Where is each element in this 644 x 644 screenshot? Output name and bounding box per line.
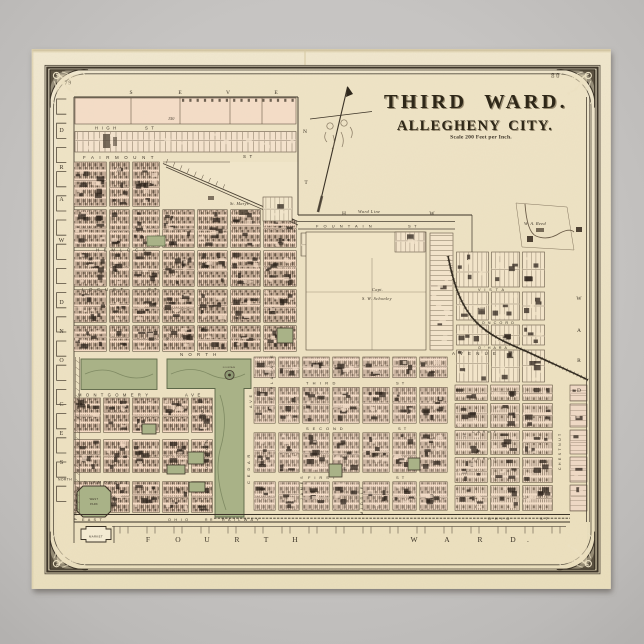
svg-text:A V E: A V E <box>200 404 205 420</box>
svg-text:W: W <box>59 238 65 244</box>
svg-text:C E D A R: C E D A R <box>246 453 251 484</box>
svg-text:W: W <box>576 296 582 302</box>
svg-text:PARK: PARK <box>90 502 98 506</box>
svg-text:R: R <box>59 165 63 171</box>
svg-text:A V E: A V E <box>185 393 201 398</box>
svg-text:D: D <box>577 388 581 394</box>
svg-text:F: F <box>146 535 150 544</box>
svg-text:T H I R D: T H I R D <box>306 381 337 386</box>
svg-text:N: N <box>303 129 307 135</box>
svg-text:S T: S T <box>396 381 405 386</box>
svg-text:D I A M O N D S T: D I A M O N D S T <box>84 481 128 485</box>
svg-text:M O N T G O M E R Y: M O N T G O M E R Y <box>78 393 150 398</box>
svg-text:C O N C O R D: C O N C O R D <box>476 321 515 325</box>
svg-text:O: O <box>59 358 64 364</box>
svg-text:A: A <box>444 535 450 544</box>
svg-text:C A R E Y: C A R E Y <box>472 430 497 434</box>
svg-text:R: R <box>477 535 482 544</box>
svg-text:V I S T A: V I S T A <box>478 288 505 292</box>
svg-text:H E M L O C K: H E M L O C K <box>96 248 148 253</box>
svg-text:H: H <box>342 211 346 217</box>
svg-text:L O C U S T: L O C U S T <box>82 287 125 292</box>
svg-text:ALLEGHENY CITY.: ALLEGHENY CITY. <box>397 118 553 134</box>
svg-text:S T: S T <box>145 126 155 131</box>
svg-text:Capt.: Capt. <box>372 287 383 292</box>
svg-text:S. W. Schonley: S. W. Schonley <box>362 296 392 301</box>
svg-text:O ' H A R A: O ' H A R A <box>478 346 508 350</box>
svg-text:H: H <box>292 535 298 544</box>
svg-text:O H I O: O H I O <box>168 518 189 522</box>
svg-text:V: V <box>226 90 230 96</box>
svg-text:NORTH: NORTH <box>58 478 72 482</box>
svg-text:W: W <box>429 211 435 217</box>
svg-text:S: S <box>60 460 63 466</box>
svg-text:R R: R R <box>205 518 213 522</box>
svg-text:E: E <box>60 431 64 437</box>
svg-text:H I G H: H I G H <box>95 126 117 131</box>
svg-text:N: N <box>59 329 64 335</box>
svg-text:T: T <box>264 535 269 544</box>
svg-text:N O R T H: N O R T H <box>180 352 218 357</box>
svg-text:J A M E S: J A M E S <box>300 475 304 500</box>
svg-text:E A S T: E A S T <box>82 518 103 522</box>
svg-text:S T: S T <box>540 517 549 521</box>
svg-text:D: D <box>59 300 64 306</box>
svg-text:S T: S T <box>408 224 418 229</box>
svg-text:MARKET: MARKET <box>89 535 103 539</box>
svg-text:A V E: A V E <box>249 394 253 408</box>
svg-text:S T: S T <box>396 475 405 480</box>
svg-text:F A I R M O U N T: F A I R M O U N T <box>83 155 156 160</box>
svg-text:F O U N T A I N: F O U N T A I N <box>316 224 374 229</box>
svg-text:A V E N U E: A V E N U E <box>452 351 498 356</box>
svg-text:W: W <box>410 535 418 544</box>
svg-text:C H E S T N U T: C H E S T N U T <box>558 433 562 470</box>
svg-text:A: A <box>577 328 581 334</box>
svg-text:O: O <box>175 535 181 544</box>
svg-text:O H I O: O H I O <box>488 517 511 521</box>
svg-text:D: D <box>59 128 64 134</box>
svg-text:.: . <box>527 535 529 544</box>
svg-text:150: 150 <box>168 116 175 121</box>
svg-text:C: C <box>59 402 63 408</box>
svg-text:S T: S T <box>243 154 253 159</box>
svg-text:THIRD WARD.: THIRD WARD. <box>384 91 568 113</box>
svg-text:U: U <box>204 535 210 544</box>
svg-text:Ward Line: Ward Line <box>358 209 381 214</box>
svg-text:P E R R Y: P E R R Y <box>472 457 497 461</box>
svg-text:A: A <box>59 197 64 203</box>
svg-text:S T: S T <box>398 426 407 431</box>
svg-text:R: R <box>577 358 581 364</box>
svg-text:R: R <box>234 535 239 544</box>
svg-text:D: D <box>510 535 516 544</box>
svg-text:U N I O N: U N I O N <box>204 438 209 470</box>
svg-text:St. Marys: St. Marys <box>230 201 249 206</box>
svg-text:E S P L A N A D E: E S P L A N A D E <box>270 354 274 400</box>
svg-text:M I D D L E: M I D D L E <box>360 486 364 515</box>
svg-text:WEST: WEST <box>90 497 99 501</box>
svg-text:FOUNTAIN: FOUNTAIN <box>223 366 236 369</box>
svg-text:R A I L W A Y: R A I L W A Y <box>222 518 260 522</box>
svg-text:S E C O N D: S E C O N D <box>306 426 344 431</box>
svg-text:Scale 200 Feet per Inch.: Scale 200 Feet per Inch. <box>450 135 512 141</box>
svg-text:S T: S T <box>148 287 158 292</box>
svg-text:S: S <box>129 90 132 96</box>
